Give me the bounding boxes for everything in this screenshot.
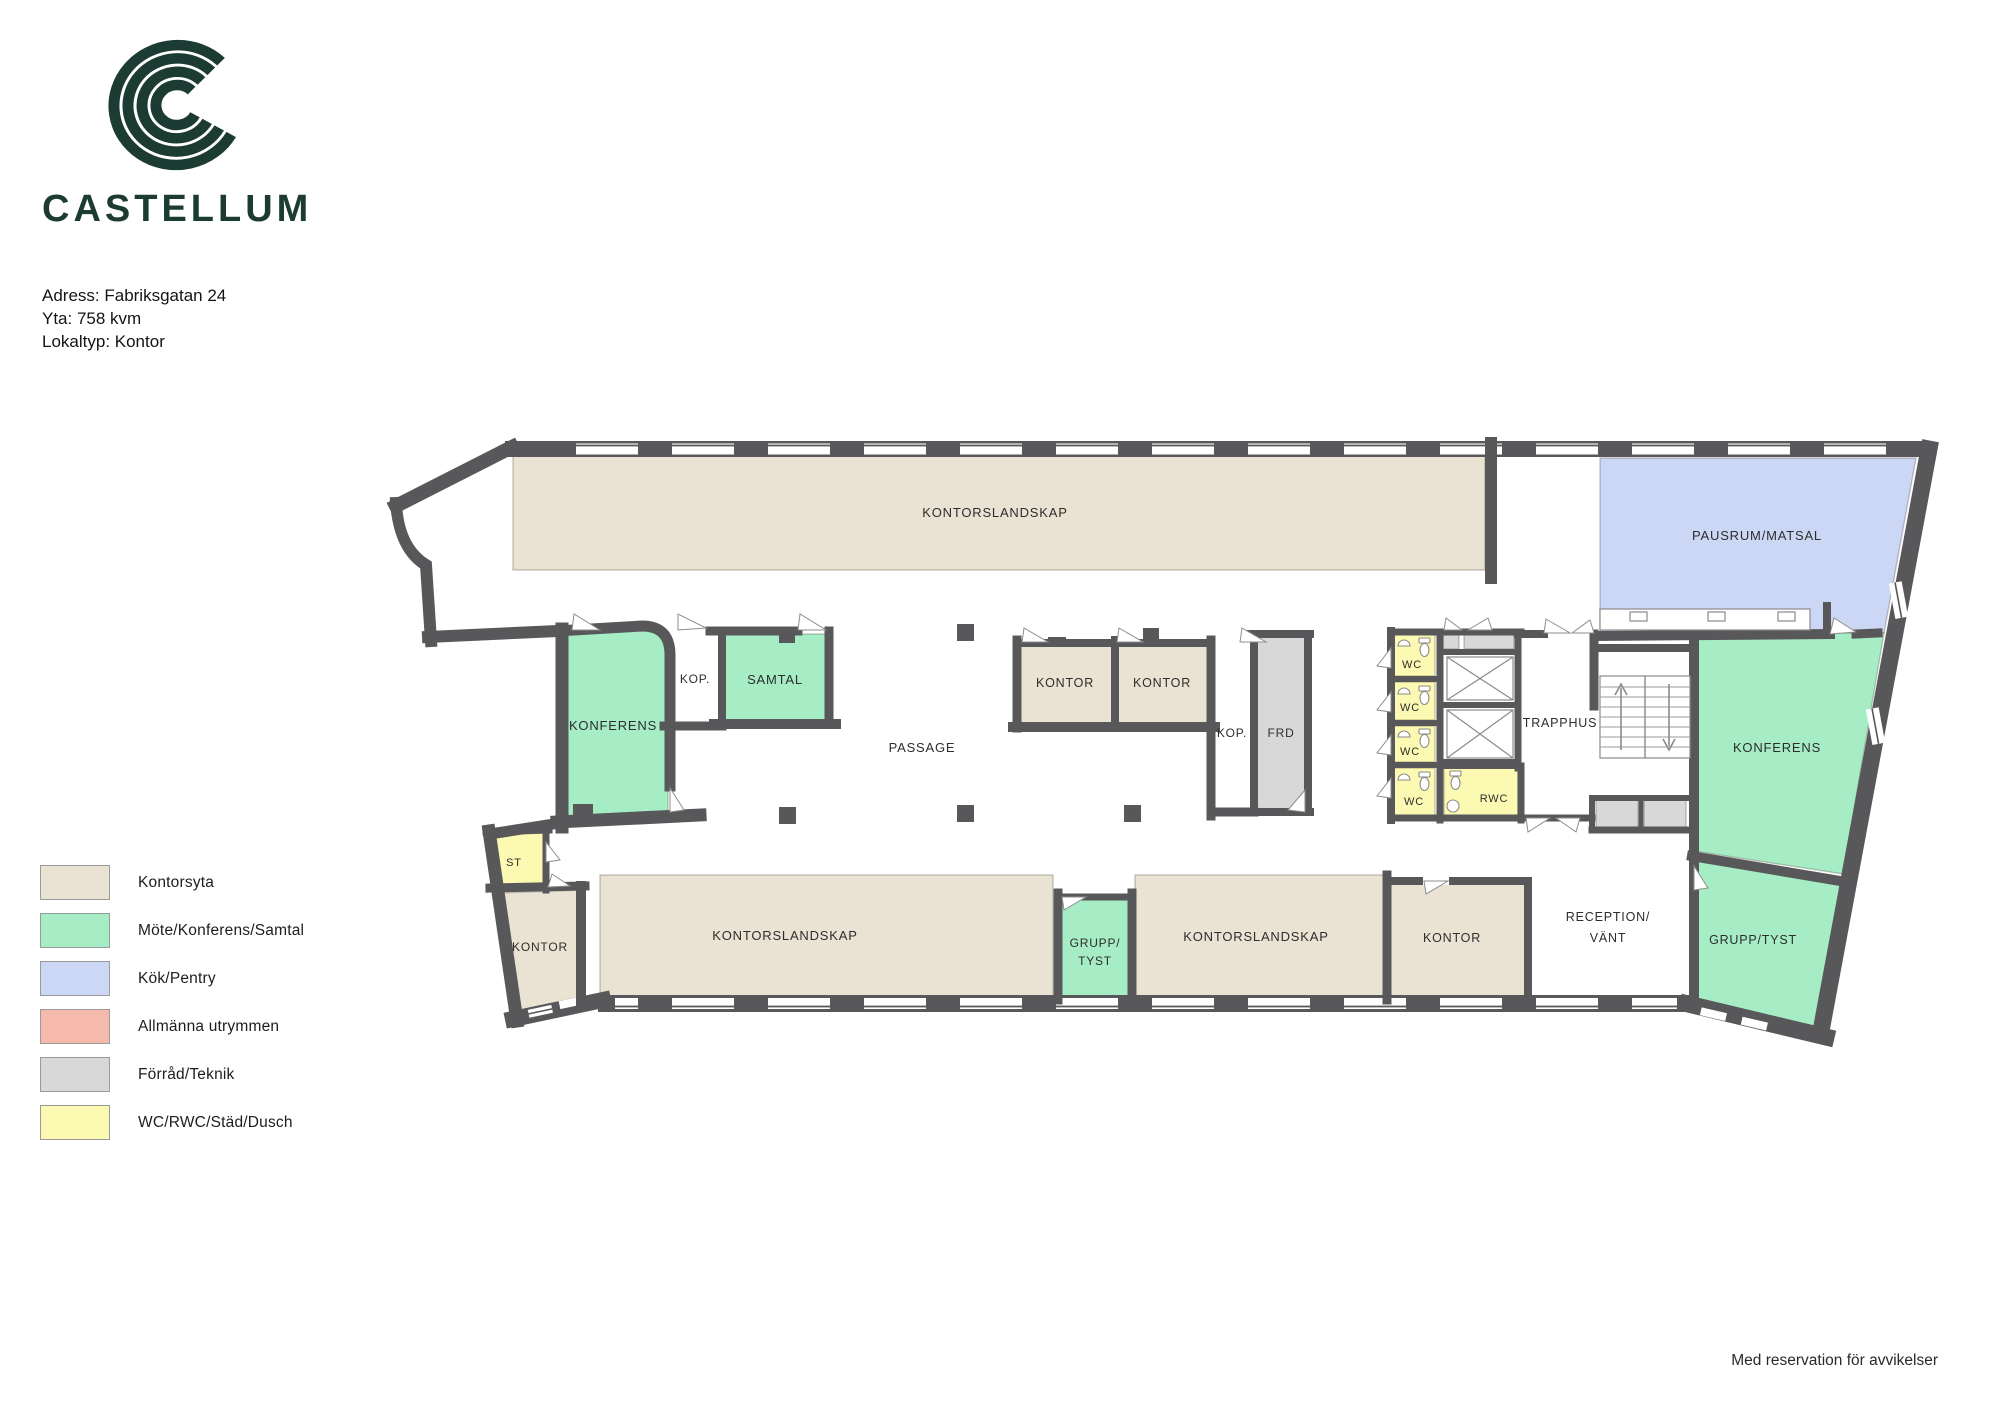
label-trapphus: TRAPPHUS <box>1523 716 1597 730</box>
label-grupp-tyst-mid-1: GRUPP/ <box>1070 936 1121 950</box>
label-konferens-left: KONFERENS <box>569 718 657 733</box>
label-grupp-tyst-mid-2: TYST <box>1078 954 1112 968</box>
zone-forrad-b <box>1644 800 1686 828</box>
label-kontor-bottom-right: KONTOR <box>1423 931 1481 945</box>
label-wc-2: WC <box>1400 702 1420 714</box>
label-kontor-mid-2: KONTOR <box>1133 676 1191 690</box>
label-kop-right: KOP. <box>1217 726 1247 740</box>
label-passage: PASSAGE <box>889 740 956 755</box>
zone-forrad-a <box>1596 800 1638 828</box>
label-st: ST <box>506 857 522 869</box>
pillar <box>779 807 796 824</box>
label-kontorslandskap-top: KONTORSLANDSKAP <box>922 505 1067 520</box>
room-pausrum-matsal <box>1600 458 1916 633</box>
label-pausrum: PAUSRUM/MATSAL <box>1692 528 1822 543</box>
kitchen-counter-icon <box>1600 609 1810 630</box>
label-wc-4: WC <box>1404 796 1424 808</box>
label-frd: FRD <box>1267 726 1294 740</box>
stairs-icon <box>1600 676 1690 758</box>
label-wc-3: WC <box>1400 746 1420 758</box>
floorplan: KONTORSLANDSKAP PAUSRUM/MATSAL KOP. SAMT… <box>0 0 2000 1414</box>
label-reception-2: VÄNT <box>1590 931 1627 945</box>
pillar <box>1124 805 1141 822</box>
label-reception-1: RECEPTION/ <box>1566 910 1650 924</box>
disclaimer: Med reservation för avvikelser <box>1731 1352 1938 1370</box>
elevator-1-icon <box>1447 657 1513 700</box>
pillar <box>957 805 974 822</box>
elevator-2-icon <box>1447 710 1513 758</box>
label-grupp-tyst-right: GRUPP/TYST <box>1709 933 1797 947</box>
room-frd <box>1254 636 1307 810</box>
label-kontorslandskap-b2: KONTORSLANDSKAP <box>1183 929 1328 944</box>
label-kontor-bottom-left: KONTOR <box>512 940 568 954</box>
label-konferens-right: KONFERENS <box>1733 740 1821 755</box>
label-kontorslandskap-b1: KONTORSLANDSKAP <box>712 928 857 943</box>
label-samtal: SAMTAL <box>747 672 803 687</box>
page: { "header": { "brand": "CASTELLUM", "add… <box>0 0 2000 1414</box>
label-kop-left: KOP. <box>680 672 710 686</box>
label-wc-1: WC <box>1402 659 1422 671</box>
label-kontor-mid-1: KONTOR <box>1036 676 1094 690</box>
label-rwc: RWC <box>1480 793 1508 805</box>
pillar <box>957 624 974 641</box>
